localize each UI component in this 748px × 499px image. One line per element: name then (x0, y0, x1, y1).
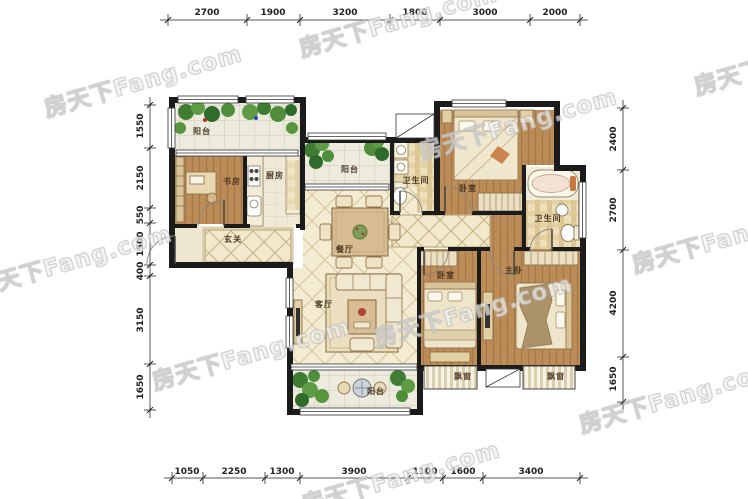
room-label-bay-window-middle: 飘窗 (454, 373, 472, 381)
room-label-bathroom: 卫生间 (403, 177, 430, 185)
dim-top-2: 1900 (260, 8, 285, 18)
dim-left-7: 1650 (136, 374, 146, 399)
room-label-bedroom-middle: 卧室 (437, 272, 455, 280)
entry-floor-pattern (203, 228, 293, 264)
dim-bottom-3: 1300 (269, 467, 294, 477)
room-label-balcony-south: 阳台 (367, 388, 385, 396)
room-label-bay-window-master: 飘窗 (547, 373, 565, 381)
floorplan-canvas: 2700 1900 3200 1800 3000 2000 1050 2250 … (0, 0, 748, 499)
room-label-dining-room: 餐厅 (336, 246, 354, 254)
dim-left-3: 550 (136, 206, 146, 225)
room-label-balcony-north: 阳台 (341, 166, 359, 174)
dim-top-4: 1800 (402, 8, 427, 18)
dim-bottom-2: 2250 (221, 467, 246, 477)
dim-bottom-7: 3400 (518, 467, 543, 477)
room-label-bedroom-north: 卧室 (459, 185, 477, 193)
dim-left-4: 1500 (136, 231, 146, 256)
dim-left-1: 1550 (136, 113, 146, 138)
room-label-study: 书房 (223, 178, 241, 186)
room-label-entry-hall: 玄关 (224, 236, 242, 244)
dim-bottom-1: 1050 (174, 467, 199, 477)
dim-top-6: 2000 (542, 8, 567, 18)
hallway-floor-pattern (392, 215, 490, 247)
dim-top-3: 3200 (332, 8, 357, 18)
dim-left-2: 2150 (136, 165, 146, 190)
room-label-kitchen: 厨房 (266, 172, 284, 180)
room-label-master-bedroom: 主卧 (505, 267, 523, 275)
dim-right-4: 1650 (609, 366, 619, 391)
dim-top-1: 2700 (194, 8, 219, 18)
dim-left-5: 400 (136, 262, 146, 281)
room-label-master-bathroom: 卫生间 (535, 215, 562, 223)
dim-right-2: 2700 (609, 197, 619, 222)
dim-bottom-4: 3900 (341, 467, 366, 477)
dim-bottom-5: 1100 (412, 467, 437, 477)
dim-right-1: 2400 (609, 126, 619, 151)
room-label-living-room: 客厅 (315, 301, 333, 309)
floor-plan-svg: 2700 1900 3200 1800 3000 2000 1050 2250 … (0, 0, 748, 499)
dim-top-5: 3000 (472, 8, 497, 18)
room-label-balcony-northwest: 阳台 (193, 128, 211, 136)
dim-right-3: 4200 (609, 290, 619, 315)
dim-left-6: 3150 (136, 307, 146, 332)
dim-bottom-6: 1600 (450, 467, 475, 477)
